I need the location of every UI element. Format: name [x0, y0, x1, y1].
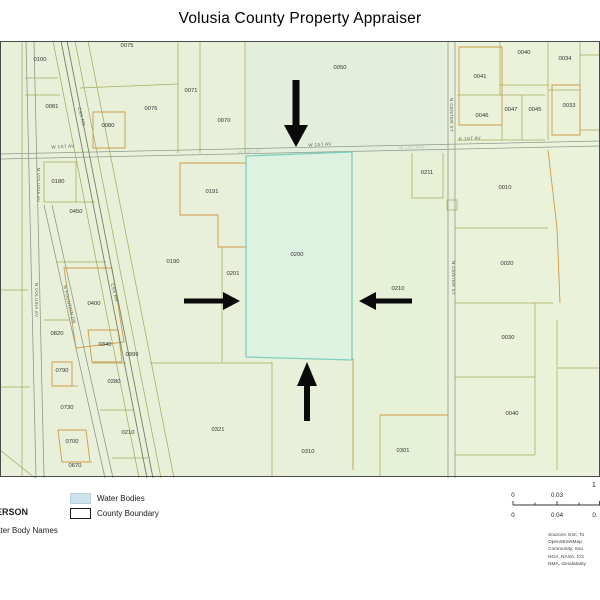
- parcel-label-0076: 0076: [145, 106, 158, 112]
- page: Volusia County Property Appraiser 010000…: [0, 0, 600, 600]
- parcel-label-0081: 0081: [46, 104, 59, 110]
- parcel-label-0310: 0310: [302, 449, 315, 455]
- sources-attribution: Sources: Esri, ToOpenStreetMapCommunity,…: [548, 532, 600, 568]
- water-bodies-swatch: [70, 493, 91, 504]
- sources-line: Sources: Esri, To: [548, 532, 600, 539]
- legend-label: Water Bodies: [97, 494, 145, 503]
- map-patch-center-east: [352, 153, 448, 477]
- parcel-label-0034: 0034: [559, 56, 573, 62]
- parcel-label-0191: 0191: [206, 189, 219, 195]
- parcel-label-0190: 0190: [167, 259, 180, 265]
- legend-item-water-bodies: Water Bodies: [70, 493, 145, 504]
- parcel-label-0033: 0033: [563, 103, 576, 109]
- street-label: N CENTER ST: [449, 98, 454, 132]
- parcel-label-0211: 0211: [421, 170, 433, 176]
- sources-line: NMA, Geodatasty: [548, 561, 600, 568]
- parcel-label-0047: 0047: [505, 107, 518, 113]
- parcel-label-0030: 0030: [502, 335, 515, 341]
- parcel-label-0670: 0670: [69, 463, 82, 469]
- parcel-label-0010: 0010: [499, 185, 512, 191]
- parcel-label-0180: 0180: [52, 179, 65, 185]
- sources-line: OpenStreetMap: [548, 539, 600, 546]
- sources-line: Community, Sou: [548, 546, 600, 553]
- parcel-label-0200: 0200: [291, 252, 304, 258]
- parcel-label-0999: 0999: [126, 352, 139, 358]
- parcel-label-0100: 0100: [34, 57, 47, 63]
- parcel-label-0450: 0450: [70, 209, 83, 215]
- parcel-label-0040: 0040: [518, 50, 531, 56]
- parcel-label-0041: 0041: [474, 74, 487, 80]
- parcel-label-0340: 0340: [99, 342, 112, 348]
- street-label: N CENTER ST: [451, 261, 456, 295]
- legend-label: County Boundary: [97, 509, 159, 518]
- street-label: N VOLUSIA AV: [36, 168, 41, 203]
- parcel-label-0075: 0075: [121, 43, 134, 49]
- parcel-label-0050: 0050: [334, 65, 347, 71]
- parcel-label-0301: 0301: [397, 448, 410, 454]
- parcel-label-0201: 0201: [227, 271, 240, 277]
- parcel-label-0080: 0080: [102, 123, 115, 129]
- legend-item-county-boundary: County Boundary: [70, 508, 159, 519]
- parcel-label-0400: 0400: [88, 301, 101, 307]
- parcel-label-0700: 0700: [66, 439, 79, 445]
- parcel-label-0210: 0210: [122, 430, 135, 436]
- parcel-label-0045: 0045: [529, 107, 542, 113]
- street-label: N VOLUSIA AV: [34, 283, 39, 318]
- parcel-label-0790: 0790: [56, 368, 69, 374]
- parcel-label-0040: 0040: [506, 411, 519, 417]
- county-boundary-swatch: [70, 508, 91, 519]
- map-patch-north: [245, 41, 445, 153]
- parcel-label-0321: 0321: [212, 427, 225, 433]
- parcel-label-0070: 0070: [218, 118, 231, 124]
- parcel-label-0730: 0730: [61, 405, 74, 411]
- parcel-label-0071: 0071: [185, 88, 198, 94]
- parcel-label-0046: 0046: [476, 113, 489, 119]
- parcel-label-0280: 0280: [108, 379, 121, 385]
- legend-cutoff-text: ERSON: [0, 507, 28, 517]
- sources-line: NGA, NASA, CG: [548, 554, 600, 561]
- map-patch-east: [455, 41, 600, 477]
- parcel-label-0210: 0210: [392, 286, 405, 292]
- legend-cutoff-text: ater Body Names: [0, 526, 58, 535]
- parcel-label-0020: 0020: [501, 261, 514, 267]
- parcel-label-0820: 0820: [51, 331, 64, 337]
